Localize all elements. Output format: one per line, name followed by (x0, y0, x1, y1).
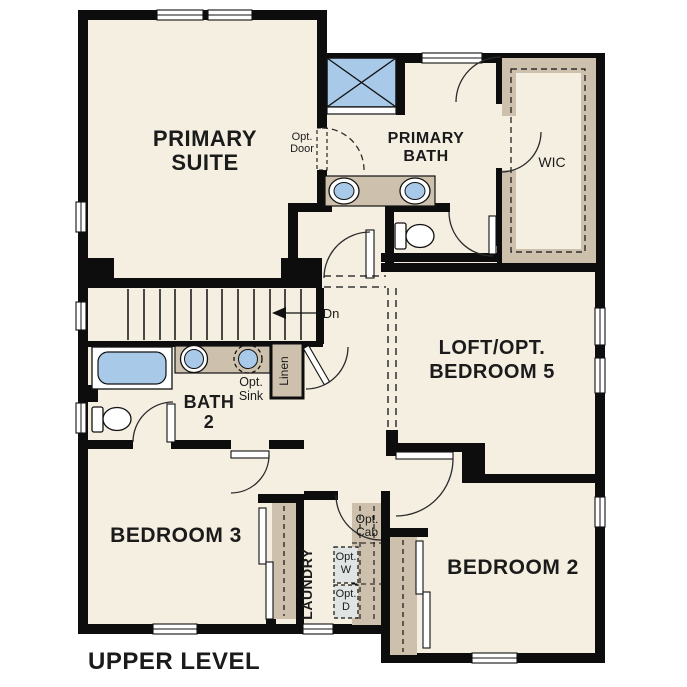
toilet-fixture (92, 407, 131, 432)
linen-label: Linen (277, 356, 291, 385)
dn-label: Dn (323, 306, 340, 321)
bath2-sink (181, 346, 208, 373)
opt-washer-label: W (341, 564, 352, 576)
toilet-fixture (395, 223, 434, 249)
bedroom3-label: BEDROOM 3 (110, 524, 242, 547)
loft-label: LOFT/OPT. (439, 337, 546, 359)
laundry-label: LAUNDRY (299, 548, 315, 620)
bathtub-fixture (92, 347, 172, 389)
bath2-label: 2 (204, 412, 215, 432)
opt-sink-label: Sink (239, 389, 264, 403)
opt-door-label: Opt. (292, 131, 313, 143)
opt-cab-label: Opt. (356, 512, 379, 526)
plan-title: UPPER LEVEL (88, 648, 260, 675)
bath2-counter (175, 345, 270, 373)
primary-suite-label: SUITE (171, 150, 238, 175)
opt-door-label: Door (290, 143, 314, 155)
opt-dryer-label: D (342, 601, 350, 613)
vanity-counter (325, 176, 435, 206)
loft-label: BEDROOM 5 (429, 361, 555, 383)
opt-dryer-label: Opt. (336, 588, 357, 600)
vanity-sink (329, 178, 359, 204)
opt-sink-label: Opt. (239, 375, 263, 389)
opt-cab-label: Cab (356, 525, 378, 539)
primary-bath-label: PRIMARY (388, 130, 465, 147)
shower-fixture (327, 58, 396, 114)
bedroom2-label: BEDROOM 2 (447, 556, 579, 579)
opt-washer-label: Opt. (336, 551, 357, 563)
wic-label: WIC (538, 154, 565, 170)
floor-plan-svg: PRIMARY SUITE PRIMARY BATH WIC LOFT/OPT.… (0, 0, 687, 687)
vanity-sink (400, 178, 430, 204)
floor-plan-page: PRIMARY SUITE PRIMARY BATH WIC LOFT/OPT.… (0, 0, 687, 687)
primary-suite-label: PRIMARY (153, 126, 257, 151)
bath2-label: BATH (184, 392, 235, 412)
primary-bath-label: BATH (403, 148, 448, 165)
